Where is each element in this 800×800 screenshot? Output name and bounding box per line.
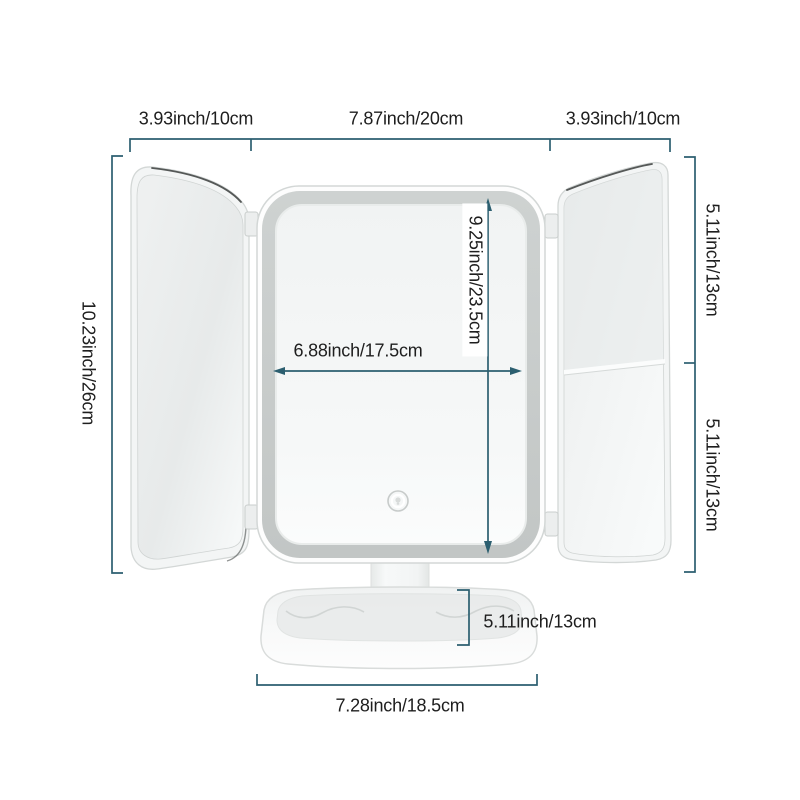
dim-label-overall-height: 10.23inch/26cm bbox=[78, 301, 99, 425]
dim-label-left-panel-width: 3.93inch/10cm bbox=[139, 109, 253, 130]
dim-label-mirror-height: 9.25inch/23.5cm bbox=[463, 203, 488, 356]
hinge-right-bottom bbox=[545, 512, 558, 536]
dim-label-center-panel-width: 7.87inch/20cm bbox=[349, 109, 463, 130]
hinge-right-top bbox=[545, 214, 558, 238]
dim-right-bracket bbox=[684, 157, 695, 572]
left-mirror-panel bbox=[131, 167, 249, 569]
hinge-left-top bbox=[245, 212, 258, 236]
hinge-left-bottom bbox=[245, 505, 258, 529]
dim-label-right-lower-height: 5.11inch/13cm bbox=[702, 418, 723, 531]
power-touch-icon bbox=[388, 491, 408, 511]
dim-label-right-panel-width: 3.93inch/10cm bbox=[566, 109, 680, 130]
left-mirror-glass bbox=[137, 175, 243, 559]
dim-label-mirror-width: 6.88inch/17.5cm bbox=[293, 341, 422, 362]
dim-label-base-width: 7.28inch/18.5cm bbox=[335, 696, 464, 717]
product-dimension-diagram: 3.93inch/10cm 7.87inch/20cm 3.93inch/10c… bbox=[0, 0, 800, 800]
dim-base-width-bracket bbox=[257, 674, 537, 685]
right-mirror-panel bbox=[558, 163, 671, 563]
dim-left-bracket bbox=[112, 156, 123, 573]
dim-label-base-height: 5.11inch/13cm bbox=[483, 612, 596, 633]
dim-top-bracket bbox=[130, 139, 670, 152]
center-mirror bbox=[257, 186, 545, 563]
dim-label-right-upper-height: 5.11inch/13cm bbox=[702, 203, 723, 316]
right-glass-upper-tint bbox=[564, 169, 664, 370]
